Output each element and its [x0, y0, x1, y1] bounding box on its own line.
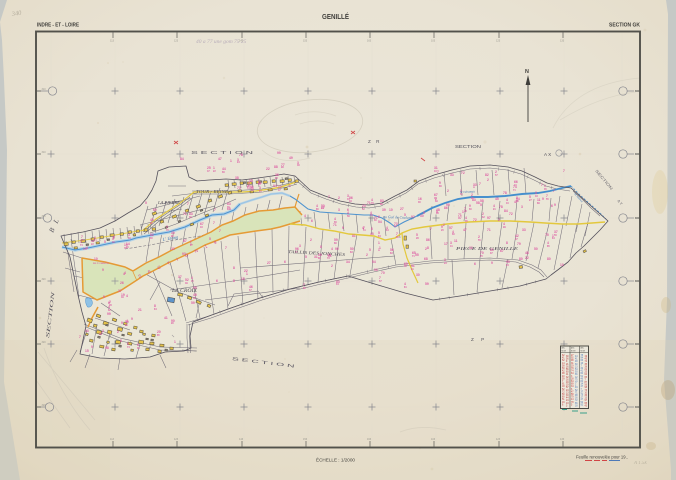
svg-text:5: 5	[423, 211, 425, 215]
svg-text:2: 2	[487, 178, 489, 182]
svg-text:A 1.5k: A 1.5k	[633, 461, 647, 466]
svg-text:97: 97	[487, 216, 491, 220]
svg-text:3: 3	[299, 244, 301, 248]
svg-text:22: 22	[266, 167, 270, 171]
svg-text:54: 54	[516, 197, 520, 201]
svg-text:47: 47	[218, 157, 222, 161]
svg-text:5: 5	[145, 201, 147, 205]
svg-text:320: 320	[42, 341, 47, 344]
svg-text:6: 6	[311, 219, 313, 223]
svg-text:71: 71	[333, 223, 337, 227]
svg-text:86: 86	[426, 238, 430, 242]
svg-text:9: 9	[91, 345, 93, 349]
svg-text:7: 7	[219, 229, 221, 233]
svg-text:123: 123	[174, 438, 179, 441]
svg-text:5: 5	[104, 240, 106, 244]
svg-text:163: 163	[367, 40, 372, 43]
svg-text:103: 103	[431, 438, 436, 441]
svg-text:27: 27	[400, 207, 404, 211]
svg-text:6: 6	[284, 260, 286, 264]
svg-text:58: 58	[480, 199, 484, 203]
svg-text:Z P: Z P	[471, 337, 487, 342]
svg-text:8: 8	[233, 266, 235, 270]
svg-text:Feuille renouvelée pour 19..: Feuille renouvelée pour 19..	[576, 455, 628, 460]
svg-text:94: 94	[273, 184, 277, 188]
svg-text:123: 123	[496, 438, 501, 441]
svg-text:4: 4	[304, 214, 306, 218]
svg-text:310: 310	[42, 88, 47, 91]
svg-text:59: 59	[191, 301, 195, 305]
svg-text:99: 99	[107, 312, 111, 316]
svg-text:17: 17	[444, 242, 448, 246]
svg-text:310: 310	[42, 151, 47, 154]
svg-text:26: 26	[120, 281, 124, 285]
svg-text:68: 68	[227, 207, 231, 211]
svg-text:7: 7	[187, 202, 189, 206]
svg-text:PIECE DE GENILLE: PIECE DE GENILLE	[454, 246, 518, 251]
svg-text:TOUR - REINE: TOUR - REINE	[196, 189, 228, 194]
svg-text:320: 320	[42, 278, 47, 281]
svg-text:6: 6	[474, 262, 476, 266]
svg-text:71: 71	[367, 201, 371, 205]
svg-text:9: 9	[491, 261, 493, 265]
svg-text:113: 113	[110, 40, 115, 43]
svg-text:133: 133	[560, 40, 565, 43]
svg-text:84: 84	[180, 157, 184, 161]
svg-text:82: 82	[485, 173, 489, 177]
svg-text:2: 2	[117, 330, 119, 334]
svg-text:73: 73	[237, 186, 241, 190]
svg-text:les 4 maisons: les 4 maisons	[93, 261, 110, 265]
svg-text:SECTION GK: SECTION GK	[609, 23, 640, 29]
svg-text:88: 88	[274, 165, 278, 169]
svg-text:7: 7	[213, 221, 215, 225]
svg-text:123: 123	[174, 40, 179, 43]
svg-text:3: 3	[338, 208, 340, 212]
svg-text:43: 43	[370, 232, 374, 236]
svg-text:6: 6	[551, 204, 553, 208]
svg-text:32: 32	[171, 247, 175, 251]
svg-text:153: 153	[303, 438, 308, 441]
svg-text:90: 90	[335, 247, 339, 251]
svg-text:SECTION: SECTION	[455, 144, 481, 149]
svg-text:2: 2	[331, 264, 333, 268]
svg-text:41: 41	[164, 316, 168, 320]
svg-text:31: 31	[314, 255, 318, 259]
svg-text:1: 1	[378, 241, 380, 245]
svg-text:13: 13	[85, 329, 89, 333]
svg-text:10: 10	[560, 263, 564, 267]
svg-text:ÉCHELLE : 1/2000: ÉCHELLE : 1/2000	[316, 457, 355, 464]
svg-text:123: 123	[496, 40, 501, 43]
svg-text:Z R: Z R	[368, 139, 381, 144]
svg-text:6: 6	[371, 227, 373, 231]
svg-text:5: 5	[480, 203, 482, 207]
svg-text:72: 72	[509, 212, 513, 216]
svg-text:2: 2	[366, 253, 368, 257]
svg-text:8: 8	[233, 279, 235, 283]
svg-text:1: 1	[462, 210, 464, 214]
svg-text:LA PIERRE: LA PIERRE	[157, 200, 181, 205]
svg-text:1: 1	[473, 185, 475, 189]
svg-text:21: 21	[138, 308, 142, 312]
svg-text:2: 2	[425, 247, 427, 251]
svg-text:54: 54	[372, 260, 376, 264]
svg-text:9: 9	[121, 321, 123, 325]
svg-text:GENILLÉ: GENILLÉ	[322, 12, 349, 21]
svg-text:103: 103	[431, 40, 436, 43]
svg-text:LA CROIX: LA CROIX	[171, 289, 198, 294]
svg-text:33: 33	[522, 228, 526, 232]
svg-text:1: 1	[378, 248, 380, 252]
svg-text:54: 54	[378, 220, 382, 224]
svg-text:5: 5	[209, 237, 211, 241]
svg-text:60: 60	[153, 208, 157, 212]
svg-text:7: 7	[553, 189, 555, 193]
svg-text:7: 7	[541, 183, 543, 187]
svg-text:50: 50	[534, 247, 538, 251]
svg-text:9: 9	[542, 197, 544, 201]
svg-text:9: 9	[554, 203, 556, 207]
svg-text:71: 71	[487, 228, 491, 232]
svg-text:19: 19	[83, 247, 87, 251]
svg-text:71: 71	[183, 212, 187, 216]
svg-text:22: 22	[244, 269, 248, 273]
svg-text:7: 7	[437, 170, 439, 174]
svg-text:80: 80	[519, 257, 523, 261]
svg-text:34: 34	[346, 260, 350, 264]
svg-text:48: 48	[525, 251, 529, 255]
svg-text:4: 4	[126, 294, 128, 298]
svg-text:87: 87	[183, 239, 187, 243]
svg-text:10: 10	[389, 208, 393, 212]
svg-text:133: 133	[560, 438, 565, 441]
svg-text:INDRE - ET - LOIRE: INDRE - ET - LOIRE	[37, 23, 79, 29]
svg-text:1: 1	[230, 159, 232, 163]
svg-text:8: 8	[320, 245, 322, 249]
svg-text:72: 72	[461, 171, 465, 175]
svg-text:59: 59	[425, 282, 429, 286]
svg-text:83: 83	[250, 186, 254, 190]
svg-text:99: 99	[277, 151, 281, 155]
svg-text:5: 5	[305, 255, 307, 259]
svg-text:15: 15	[85, 349, 89, 353]
svg-text:1: 1	[174, 340, 176, 344]
svg-text:78: 78	[499, 205, 503, 209]
svg-text:15: 15	[241, 277, 245, 281]
svg-text:45: 45	[495, 197, 499, 201]
svg-text:5: 5	[103, 295, 105, 299]
svg-text:S E C T I O N: S E C T I O N	[191, 150, 253, 155]
svg-text:57: 57	[449, 226, 453, 230]
svg-text:3: 3	[521, 205, 523, 209]
svg-text:2: 2	[338, 196, 340, 200]
svg-text:5: 5	[369, 248, 371, 252]
svg-text:22: 22	[525, 256, 529, 260]
svg-text:98: 98	[105, 346, 109, 350]
svg-text:72: 72	[473, 218, 477, 222]
svg-text:33: 33	[450, 173, 454, 177]
svg-text:2: 2	[310, 238, 312, 242]
svg-text:58: 58	[476, 201, 480, 205]
svg-text:8: 8	[113, 235, 115, 239]
svg-text:11: 11	[454, 239, 458, 243]
svg-text:9: 9	[131, 317, 133, 321]
svg-text:1: 1	[190, 242, 192, 246]
svg-text:49: 49	[289, 156, 293, 160]
svg-text:6: 6	[216, 279, 218, 283]
svg-text:153: 153	[303, 40, 308, 43]
svg-text:81: 81	[352, 234, 356, 238]
svg-text:2: 2	[443, 223, 445, 227]
svg-text:27: 27	[267, 261, 271, 265]
svg-text:163: 163	[367, 438, 372, 441]
svg-text:143: 143	[239, 438, 244, 441]
svg-text:47: 47	[463, 228, 467, 232]
svg-text:6: 6	[378, 215, 380, 219]
svg-text:37: 37	[118, 289, 122, 293]
svg-text:143: 143	[239, 40, 244, 43]
svg-text:AX: AX	[544, 152, 552, 157]
svg-text:37: 37	[178, 275, 182, 279]
svg-text:80: 80	[547, 257, 551, 261]
svg-text:113: 113	[110, 438, 115, 441]
svg-text:4: 4	[124, 271, 126, 275]
svg-text:75: 75	[545, 233, 549, 237]
svg-text:99: 99	[446, 203, 450, 207]
svg-text:30: 30	[416, 273, 420, 277]
svg-text:7: 7	[479, 182, 481, 186]
svg-text:35: 35	[249, 179, 253, 183]
svg-text:7: 7	[430, 227, 432, 231]
svg-text:68: 68	[424, 257, 428, 261]
svg-text:le ruisseau: le ruisseau	[460, 189, 475, 194]
svg-text:8: 8	[120, 339, 122, 343]
svg-text:7: 7	[328, 195, 330, 199]
svg-text:8: 8	[427, 246, 429, 250]
svg-text:37: 37	[99, 332, 103, 336]
svg-text:6: 6	[347, 208, 349, 212]
svg-text:1: 1	[289, 184, 291, 188]
svg-text:38: 38	[235, 176, 239, 180]
svg-text:7: 7	[79, 335, 81, 339]
svg-text:7: 7	[214, 208, 216, 212]
svg-text:9: 9	[342, 226, 344, 230]
svg-text:10: 10	[94, 257, 98, 261]
svg-text:320: 320	[42, 215, 47, 218]
svg-text:39: 39	[382, 208, 386, 212]
svg-text:N: N	[525, 69, 529, 75]
svg-text:7: 7	[225, 246, 227, 250]
svg-text:7: 7	[563, 169, 565, 173]
svg-text:93: 93	[374, 268, 378, 272]
svg-text:78: 78	[503, 191, 507, 195]
svg-text:320: 320	[42, 404, 47, 407]
svg-text:8: 8	[506, 241, 508, 245]
svg-text:2: 2	[498, 218, 500, 222]
svg-text:2: 2	[447, 189, 449, 193]
svg-text:9: 9	[102, 268, 104, 272]
svg-text:70: 70	[381, 271, 385, 275]
svg-text:84: 84	[504, 209, 508, 213]
